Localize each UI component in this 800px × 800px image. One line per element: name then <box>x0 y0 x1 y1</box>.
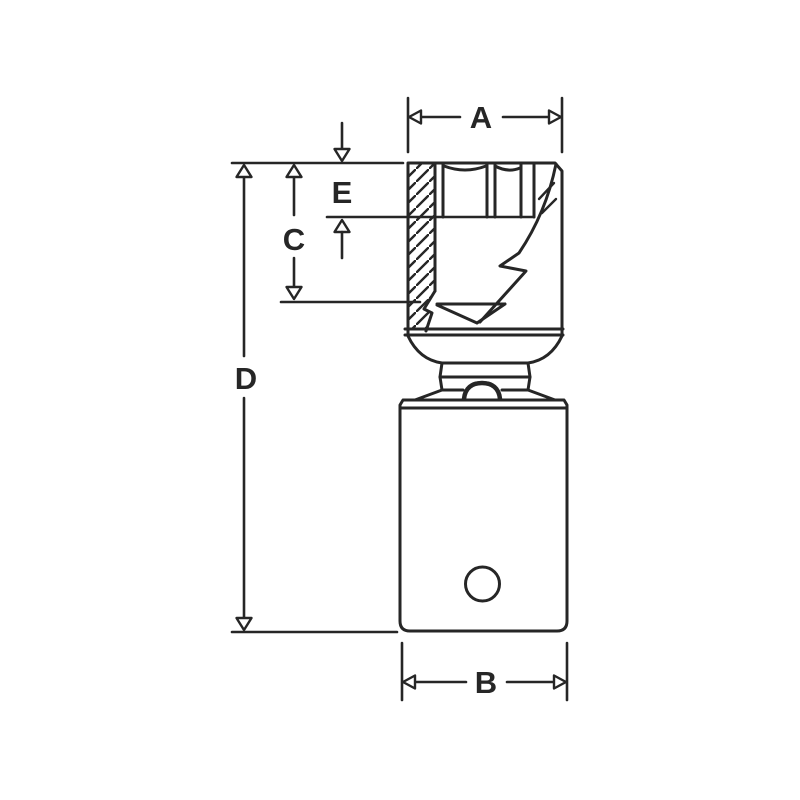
dim-c-arrow-down-icon <box>287 287 302 299</box>
dim-a-arrow-right-icon <box>549 111 561 124</box>
dim-a-arrow-left-icon <box>409 111 421 124</box>
detent-dome-arc <box>464 383 500 399</box>
neck <box>408 336 562 400</box>
hex-recess-arcs <box>444 166 520 170</box>
drawing-root <box>232 98 567 700</box>
socket-head <box>405 163 563 335</box>
pin-hole <box>466 567 500 601</box>
dim-label-c: C <box>283 222 305 257</box>
dim-e-arrow-up-icon <box>335 220 350 232</box>
dim-b-arrow-right-icon <box>554 676 566 689</box>
neck-left-fillet <box>408 336 442 363</box>
dimension-d <box>232 163 403 632</box>
dim-b-arrow-left-icon <box>403 676 415 689</box>
section-hatch-band <box>408 163 435 329</box>
drive-body <box>400 400 567 631</box>
head-bottom-flange <box>405 329 563 335</box>
dim-label-d: D <box>235 361 257 396</box>
neck-right-fillet <box>528 336 562 363</box>
body-outline <box>400 400 567 631</box>
dim-c-arrow-up-icon <box>287 165 302 177</box>
dim-label-a: A <box>470 100 492 135</box>
dim-d-arrow-down-icon <box>237 618 252 630</box>
dim-d-arrow-up-icon <box>237 165 252 177</box>
dim-e-arrow-down-icon <box>335 149 350 161</box>
break-line <box>480 164 556 322</box>
diagram-canvas: A B C D E <box>0 0 800 800</box>
dim-label-b: B <box>475 665 497 700</box>
dim-label-e: E <box>332 175 353 210</box>
socket-dimension-diagram: A B C D E <box>0 0 800 800</box>
hex-recess-walls <box>435 164 534 291</box>
